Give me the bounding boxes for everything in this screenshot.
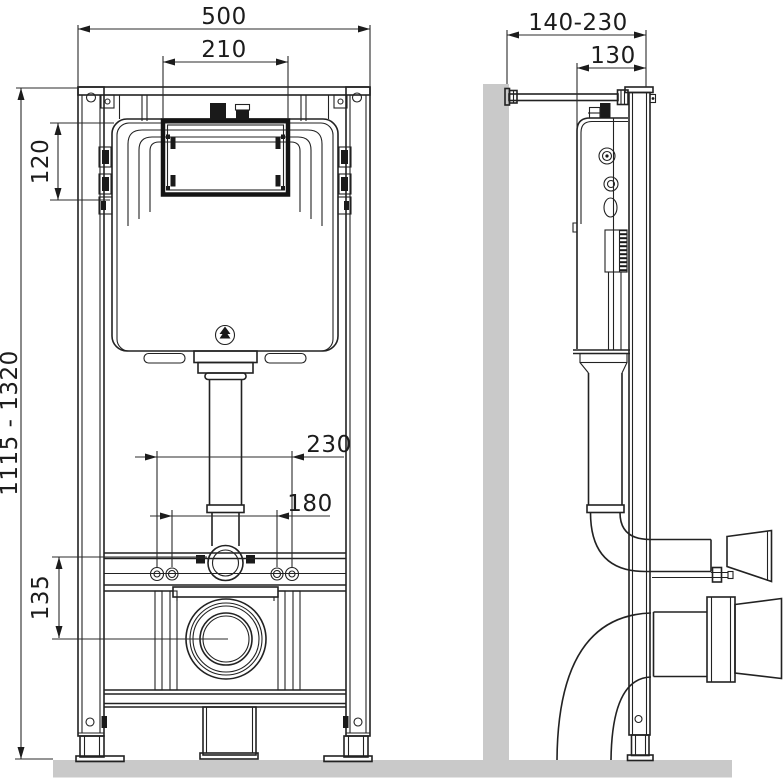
front-view <box>76 87 372 762</box>
cistern-front <box>99 103 351 363</box>
brand-mark-icon <box>216 326 235 345</box>
flush-pipe-front <box>194 351 257 581</box>
dim-front-width: 500 <box>201 4 246 30</box>
cross-rails <box>104 553 346 601</box>
dim-wall-distance: 140-230 <box>528 10 628 36</box>
installation-frame-drawing: 500 210 120 1115 - 1320 135 230 180 <box>0 0 784 784</box>
flush-plate-opening <box>163 121 288 195</box>
dimensions: 500 210 120 1115 - 1320 135 230 180 <box>0 4 646 759</box>
outlet-side <box>557 597 782 760</box>
dim-frame-depth: 130 <box>590 43 635 69</box>
outlet-front <box>76 591 372 762</box>
technical-drawing: 500 210 120 1115 - 1320 135 230 180 <box>0 0 784 784</box>
frame-rail-side <box>625 87 656 761</box>
wall-support-rod <box>505 89 628 106</box>
hatched-bracket <box>620 230 628 272</box>
cistern-side <box>573 103 630 373</box>
wall-section <box>483 84 509 760</box>
floor-section <box>53 760 732 778</box>
dim-outlet-height: 135 <box>28 575 54 620</box>
water-inlet-fitting <box>210 103 226 120</box>
dim-opening-width: 210 <box>201 37 246 63</box>
flush-pipe-side <box>587 373 772 582</box>
side-view <box>505 87 782 761</box>
dim-fixing-inner: 180 <box>287 491 332 517</box>
dim-opening-height: 120 <box>28 139 54 184</box>
dim-install-height: 1115 - 1320 <box>0 350 23 496</box>
dim-fixing-outer: 230 <box>306 432 351 458</box>
